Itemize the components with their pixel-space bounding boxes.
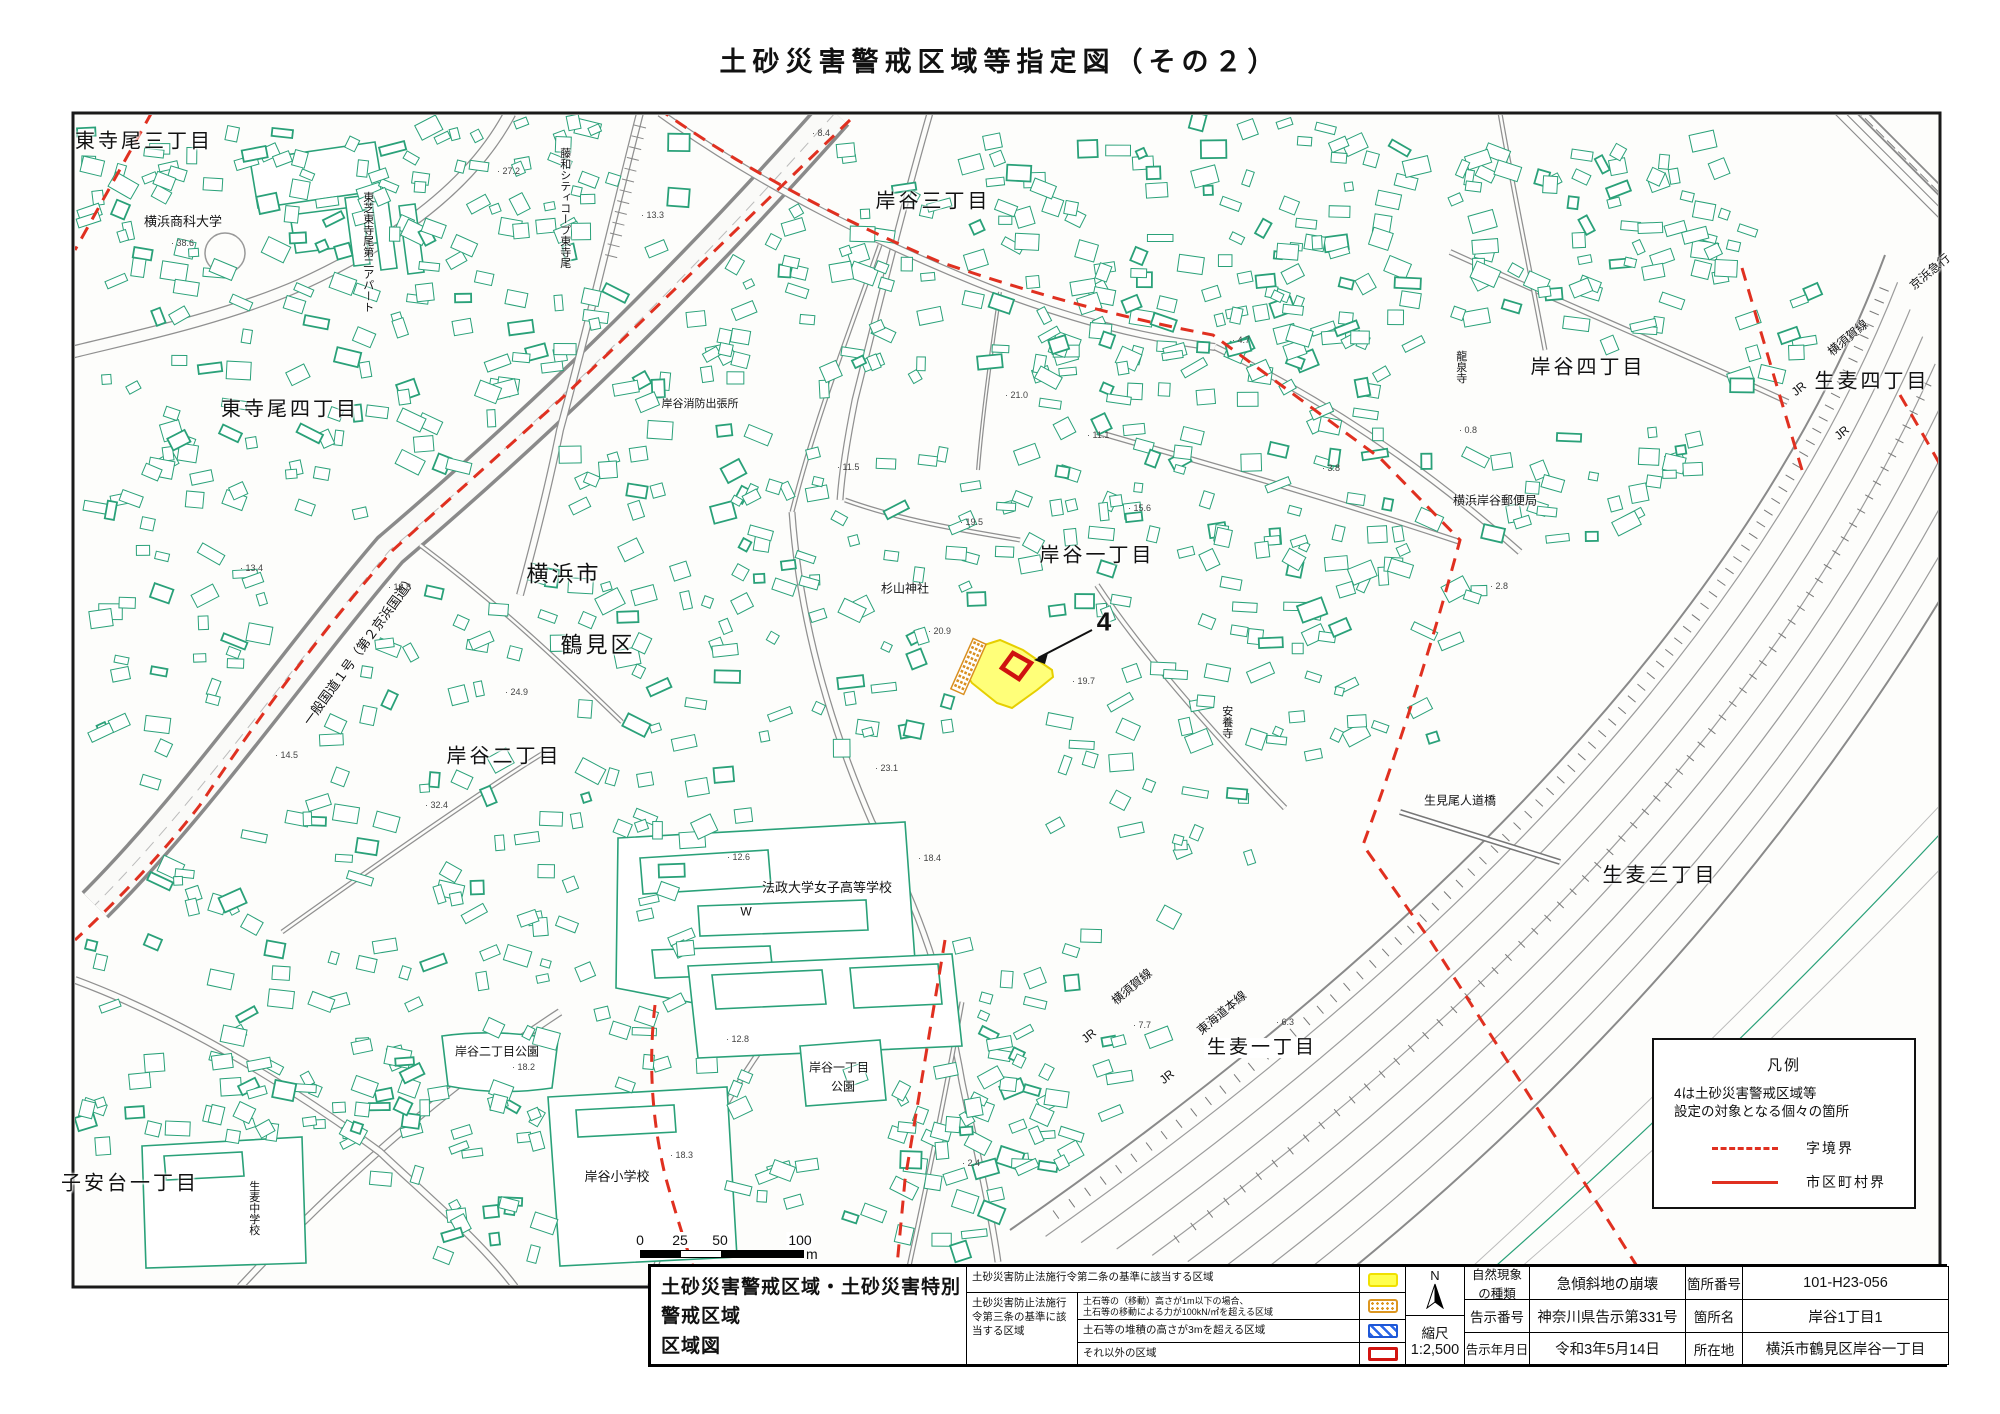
swatch-red-other-zone	[1368, 1347, 1398, 1361]
scale-tick-25: 25	[670, 1232, 690, 1248]
legend-note: 4は土砂災害警戒区域等 設定の対象となる個々の箇所	[1674, 1085, 1914, 1121]
spot-height: · 12.8	[388, 582, 411, 592]
spot-height: · 2.4	[962, 1158, 980, 1168]
notice-date-header: 告示年月日	[1466, 1339, 1529, 1358]
legend-note-line2: 設定の対象となる個々の箇所	[1674, 1103, 1914, 1121]
spot-height: · 19.7	[1072, 676, 1095, 686]
spot-height: · 0.8	[1459, 425, 1477, 435]
spot-height: · 19.5	[960, 517, 983, 527]
map-label-kishiya-3: 岸谷三丁目	[876, 192, 991, 213]
map-label-yokohama-shi: 横浜市	[526, 562, 601, 585]
compass-n-label: N	[1424, 1268, 1446, 1283]
swatch-blue-deposit-zone	[1368, 1324, 1398, 1338]
spot-height: · 20.9	[928, 626, 951, 636]
zone-row2-line1: 土石等の（移動）高さが1m以下の場合、	[1083, 1296, 1354, 1307]
location-header: 所在地	[1694, 1339, 1735, 1359]
hazard-site-marker-4[interactable]: 4	[1097, 608, 1111, 635]
legend-municipal-boundary: 市区町村界	[1806, 1172, 1886, 1192]
scale-tick-0: 0	[634, 1232, 646, 1248]
map-label-umio-bridge: 生見尾人道橋	[1421, 795, 1499, 808]
spot-height: · 27.2	[497, 166, 520, 176]
legend-note-line1: 4は土砂災害警戒区域等	[1674, 1085, 1914, 1103]
scale-bar: 0 25 50 100 m	[600, 1232, 840, 1264]
map-label-hosei-school: 法政大学女子高等学校	[762, 881, 892, 895]
map-label-kishiya-shogakko: 岸谷小学校	[584, 1170, 649, 1184]
spot-height: · 4.7	[1232, 335, 1250, 345]
phenomenon-header: 自然現象の種類	[1469, 1266, 1525, 1300]
site-number-value: 101-H23-056	[1803, 1275, 1888, 1291]
page: { "title": "土砂災害警戒区域等指定図（その２）", "legend_…	[0, 0, 2000, 1414]
map-label-w-mark: W	[740, 906, 751, 919]
scale-tick-50: 50	[710, 1232, 730, 1248]
spot-height: · 12.6	[727, 852, 750, 862]
map-label-kishiya-2: 岸谷二丁目	[447, 747, 562, 768]
map-label-higashiterao-3: 東寺尾三丁目	[75, 132, 213, 153]
notice-number-header: 告示番号	[1470, 1306, 1524, 1326]
notice-number-value: 神奈川県告示第331号	[1537, 1306, 1677, 1327]
map-label-koyasudai-1: 子安台一丁目	[61, 1174, 199, 1195]
zone-row1-label: 土砂災害防止法施行令第二条の基準に該当する区域	[967, 1267, 1359, 1287]
spot-height: · 13.3	[641, 210, 664, 220]
spot-height: · 18.2	[512, 1062, 535, 1072]
scale-unit: m	[806, 1246, 818, 1262]
map-label-tsurumi-ku: 鶴見区	[560, 633, 635, 656]
spot-height: · 12.8	[726, 1034, 749, 1044]
scale-bar-rule	[640, 1250, 804, 1258]
map-label-shokadai: 横浜商科大学	[144, 215, 222, 229]
map-label-kishiya2-park: 岸谷二丁目公園	[455, 1046, 539, 1059]
compass-icon	[1424, 1283, 1446, 1309]
map-label-namamugi-3: 生麦三丁目	[1603, 866, 1718, 887]
site-name-header: 箇所名	[1694, 1306, 1735, 1326]
spot-height: · 32.4	[425, 800, 448, 810]
map-label-towa-city-coop: 藤和シティコープ東寺尾	[558, 148, 570, 269]
notice-date-value: 令和3年5月14日	[1555, 1338, 1660, 1359]
spot-height: · 24.9	[505, 687, 528, 697]
location-value: 横浜市鶴見区岸谷一丁目	[1766, 1338, 1926, 1359]
legend-title: 凡例	[1654, 1054, 1914, 1075]
swatch-yellow-warning-zone	[1368, 1273, 1398, 1287]
map-label-namamugi-4: 生麦四丁目	[1815, 372, 1930, 393]
spot-height: · 23.1	[875, 763, 898, 773]
map-label-kishiya1-park-1: 岸谷一丁目	[809, 1062, 869, 1075]
law3-header: 土砂災害防止法施行令第三条の基準に該当する区域	[967, 1293, 1077, 1342]
map-doc-title-line1: 土砂災害警戒区域・土砂災害特別警戒区域	[661, 1273, 966, 1332]
spot-height: · 14.5	[275, 750, 298, 760]
spot-height: · 8.4	[812, 128, 830, 138]
site-number-header: 箇所番号	[1687, 1273, 1741, 1293]
map-label-anyoji: 安養寺	[1220, 706, 1232, 739]
map-label-ryusenji: 龍泉寺	[1454, 351, 1466, 384]
legend-aza-boundary: 字境界	[1806, 1138, 1854, 1158]
municipal-boundary-line-icon	[1712, 1181, 1778, 1184]
map-label-higashiterao-4: 東寺尾四丁目	[221, 400, 359, 421]
map-label-kishiya-1: 岸谷一丁目	[1040, 546, 1155, 567]
map-label-namamugi-1: 生麦一丁目	[1204, 1038, 1320, 1058]
spot-height: · 38.6	[171, 238, 194, 248]
zone-row4-label: それ以外の区域	[1078, 1343, 1359, 1363]
spot-height: · 15.6	[1128, 503, 1151, 513]
phenomenon-value: 急傾斜地の崩壊	[1557, 1273, 1659, 1294]
map-label-namamugi-chugakko: 生麦中学校	[247, 1181, 259, 1236]
scale-label: 縮尺	[1411, 1322, 1459, 1342]
map-label-toshiba-apart: 東芝東寺尾第二アパート	[361, 192, 373, 313]
info-table: 土砂災害警戒区域・土砂災害特別警戒区域 区域図 土砂災害防止法施行令第二条の基準…	[648, 1264, 1947, 1367]
spot-height: · 11.1	[1087, 430, 1109, 440]
spot-height: · 6.3	[1276, 1017, 1294, 1027]
zone-row3-label: 土石等の堆積の高さが3mを超える区域	[1078, 1320, 1359, 1340]
spot-height: · 21.0	[1005, 390, 1028, 400]
map-label-sugiyama-jinja: 杉山神社	[881, 583, 929, 596]
legend-box: 凡例 4は土砂災害警戒区域等 設定の対象となる個々の箇所 字境界 市区町村界	[1652, 1038, 1916, 1209]
spot-height: · 18.4	[918, 853, 941, 863]
zone-row2-line2: 土石等の移動による力が100kN/㎡を超える区域	[1083, 1307, 1354, 1318]
spot-height: · 11.5	[837, 462, 859, 472]
scale-value: 1:2,500	[1411, 1342, 1459, 1358]
spot-height: · 18.3	[670, 1150, 693, 1160]
swatch-orange-special-zone	[1368, 1299, 1398, 1313]
map-label-kishiya-4: 岸谷四丁目	[1531, 358, 1646, 379]
spot-height: · 3.8	[1322, 463, 1340, 473]
map-label-yubinkyoku: 横浜岸谷郵便局	[1453, 495, 1537, 508]
spot-height: · 7.7	[1133, 1020, 1151, 1030]
site-name-value: 岸谷1丁目1	[1808, 1306, 1882, 1327]
map-label-shobo-shutchojo: 岸谷消防出張所	[662, 399, 739, 411]
aza-boundary-line-icon	[1712, 1147, 1778, 1150]
map-label-kishiya1-park-2: 公園	[831, 1081, 855, 1094]
spot-height: · 13.4	[240, 563, 263, 573]
map-doc-title-line2: 区域図	[661, 1332, 966, 1361]
spot-height: · 2.8	[1490, 581, 1508, 591]
